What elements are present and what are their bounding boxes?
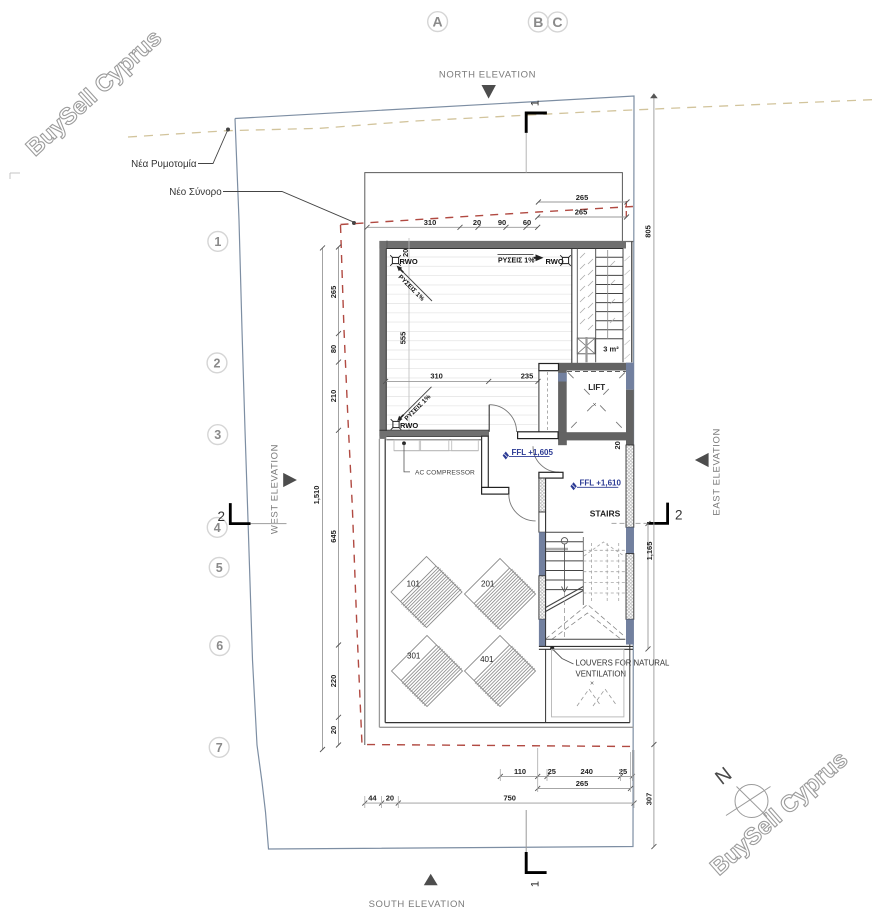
svg-text:FFL +1,610: FFL +1,610 [580, 479, 622, 488]
svg-text:220: 220 [329, 675, 338, 688]
svg-text:ΡΥΣΕΙΣ 1%: ΡΥΣΕΙΣ 1% [498, 258, 535, 265]
svg-text:110: 110 [514, 767, 526, 776]
svg-text:20: 20 [613, 441, 622, 449]
svg-text:5: 5 [216, 561, 223, 575]
svg-text:210: 210 [329, 390, 338, 403]
svg-text:555: 555 [399, 332, 408, 345]
svg-text:×: × [590, 681, 594, 688]
svg-text:NORTH ELEVATION: NORTH ELEVATION [439, 70, 536, 81]
svg-text:6: 6 [216, 639, 223, 653]
svg-text:LOUVERS FOR NATURAL: LOUVERS FOR NATURAL [576, 659, 671, 668]
svg-text:2: 2 [214, 356, 221, 370]
svg-text:20: 20 [329, 726, 338, 734]
svg-text:60: 60 [523, 218, 531, 227]
svg-text:265: 265 [576, 193, 589, 202]
svg-text:90: 90 [498, 218, 506, 227]
svg-text:SOUTH ELEVATION: SOUTH ELEVATION [369, 899, 466, 910]
svg-text:20: 20 [401, 249, 410, 257]
svg-text:1: 1 [530, 881, 542, 887]
svg-text:20: 20 [473, 218, 481, 227]
svg-text:101: 101 [407, 579, 421, 588]
svg-text:RWO: RWO [400, 257, 418, 266]
svg-text:1,165: 1,165 [645, 542, 654, 561]
svg-text:20: 20 [386, 794, 394, 803]
svg-text:805: 805 [644, 225, 653, 238]
svg-text:7: 7 [216, 741, 223, 755]
svg-text:FFL +1,605: FFL +1,605 [512, 448, 554, 457]
svg-text:STAIRS: STAIRS [590, 509, 621, 519]
svg-text:265: 265 [575, 208, 588, 217]
svg-text:235: 235 [521, 372, 534, 381]
svg-text:401: 401 [480, 655, 494, 664]
svg-text:×: × [592, 402, 596, 409]
svg-text:25: 25 [619, 767, 627, 776]
svg-text:265: 265 [329, 286, 338, 299]
svg-text:44: 44 [368, 794, 377, 803]
svg-text:Νέα Ρυμοτομία: Νέα Ρυμοτομία [131, 159, 197, 170]
svg-text:265: 265 [576, 779, 589, 788]
svg-text:1: 1 [529, 100, 541, 106]
svg-text:Νέο Σύνορο: Νέο Σύνορο [169, 187, 222, 198]
svg-text:307: 307 [645, 793, 654, 806]
svg-text:201: 201 [481, 579, 495, 588]
svg-text:VENTILATION: VENTILATION [576, 670, 627, 679]
svg-text:25: 25 [548, 767, 556, 776]
svg-text:WEST ELEVATION: WEST ELEVATION [270, 444, 281, 534]
svg-text:1,510: 1,510 [312, 486, 321, 505]
svg-text:645: 645 [329, 530, 338, 543]
svg-text:310: 310 [424, 218, 437, 227]
svg-text:80: 80 [329, 345, 338, 353]
svg-text:750: 750 [503, 794, 516, 803]
svg-text:240: 240 [580, 767, 593, 776]
svg-text:310: 310 [430, 372, 443, 381]
svg-text:EAST ELEVATION: EAST ELEVATION [712, 428, 723, 516]
svg-text:AC COMPRESSOR: AC COMPRESSOR [415, 470, 475, 477]
svg-text:1: 1 [214, 235, 221, 249]
svg-text:LIFT: LIFT [588, 383, 605, 392]
svg-text:3: 3 [214, 428, 221, 442]
svg-text:A: A [433, 14, 443, 30]
svg-text:2: 2 [217, 509, 225, 524]
svg-text:RWO: RWO [400, 421, 418, 430]
svg-text:C: C [552, 14, 562, 30]
svg-text:3 m²: 3 m² [603, 345, 619, 354]
svg-text:2: 2 [675, 508, 683, 523]
svg-text:B: B [533, 14, 543, 30]
svg-text:301: 301 [407, 652, 421, 661]
